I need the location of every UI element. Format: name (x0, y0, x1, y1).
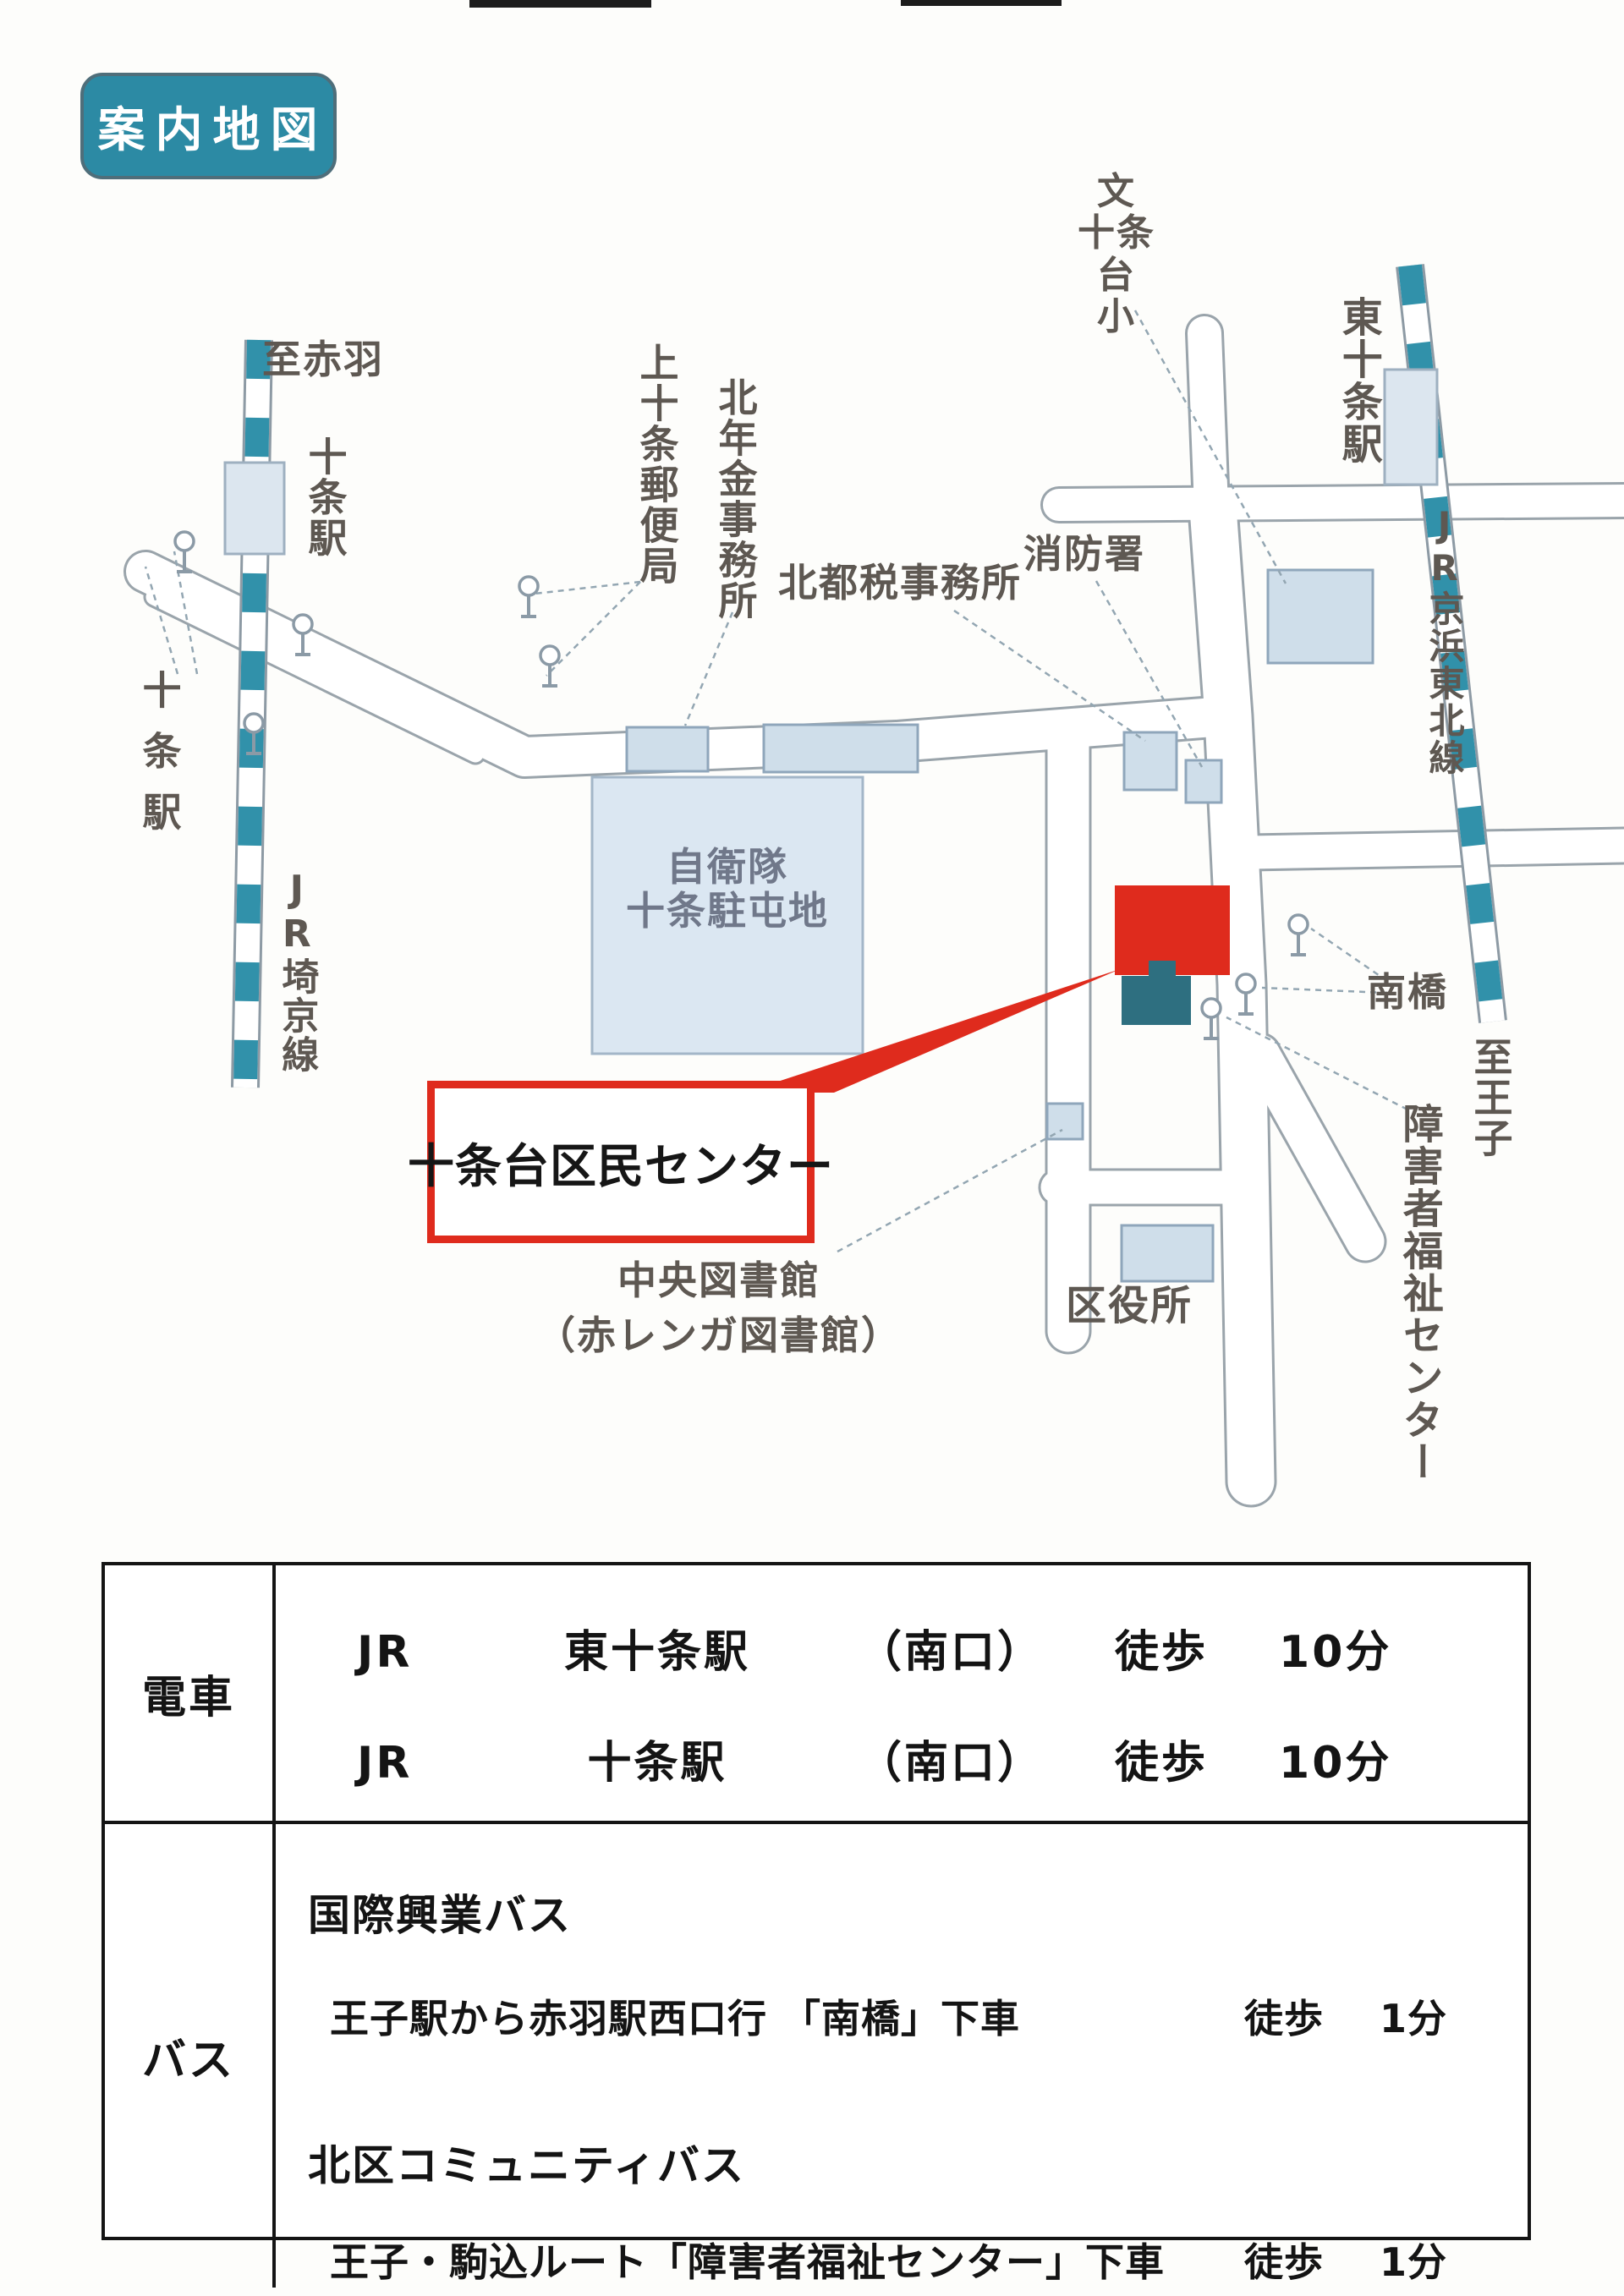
school-building (1268, 570, 1373, 663)
bus-operator: 国際興業バス (308, 1882, 1447, 1943)
bus-route: 王子・駒込ルート「障害者福祉センター」下車 (330, 2232, 1165, 2288)
fire-station-building (1124, 732, 1177, 790)
kita-tax-office-label: 北都税事務所 (778, 562, 1022, 606)
train-time: 10分 (1279, 1727, 1391, 1790)
jujo-station-east-label: 十条駅 (303, 436, 347, 558)
kami-jujo-post-office-label: 上十条郵便局 (634, 342, 678, 586)
bus-time: 1分 (1380, 1988, 1447, 2044)
jujo-station-building (225, 463, 284, 554)
higashi-jujo-station-label: 東十条駅 (1335, 296, 1380, 465)
train-station: 十条駅 (518, 1727, 797, 1790)
tax-office-building (1186, 760, 1221, 803)
train-row-header: 電車 (105, 1565, 276, 1824)
civic-center-callout: 十条台区民センター (427, 1081, 815, 1243)
jsdf-garrison-label: 自衛隊 十条駐屯地 (592, 846, 863, 933)
jsdf-label-line2: 十条駐屯地 (592, 890, 863, 934)
to-oji-label: 至王子 (1468, 1037, 1512, 1159)
bus-row-header: バス (105, 1824, 276, 2288)
bus-route-line: 王子・駒込ルート「障害者福祉センター」下車 徒歩 1分 (308, 2232, 1447, 2288)
bus-row-content: 国際興業バス 王子駅から赤羽駅西口行 「南橋」下車 徒歩 1分 北区コミュニティ… (276, 1824, 1528, 2288)
train-exit: （南口） (858, 1727, 1044, 1790)
central-library-label-line2: （赤レンガ図書館） (464, 1308, 974, 1363)
bus-stop-icon (519, 577, 538, 616)
school-label-line2: 十条台 (1059, 212, 1174, 296)
train-mode: 徒歩 (1115, 1616, 1208, 1680)
bus-route: 王子駅から赤羽駅西口行 「南橋」下車 (330, 1988, 1020, 2044)
map-title-badge: 案内地図 (80, 73, 337, 179)
bus-row-header-label: バス (142, 2025, 235, 2088)
bus-stop-icon (540, 646, 559, 686)
train-line: JR 東十条駅 （南口） 徒歩 10分 (357, 1616, 1447, 1680)
train-company: JR (357, 1738, 433, 1789)
jujo-station-west-label: 十条駅 (137, 670, 181, 852)
train-row-content: JR 東十条駅 （南口） 徒歩 10分 JR 十条駅 （南口） 徒歩 10分 (276, 1565, 1528, 1824)
jsdf-label-line1: 自衛隊 (592, 846, 863, 890)
school-label-line3: 小 (1059, 296, 1174, 337)
train-time: 10分 (1279, 1616, 1391, 1680)
welfare-center-building (1122, 976, 1191, 1025)
train-station: 東十条駅 (518, 1616, 797, 1680)
bus-stop-icon (1289, 915, 1308, 955)
map-title: 案内地図 (90, 92, 328, 161)
to-akabane-label: 至赤羽 (262, 338, 384, 382)
bus-route-line: 王子駅から赤羽駅西口行 「南橋」下車 徒歩 1分 (308, 1988, 1447, 2044)
post-office-building (627, 727, 708, 771)
fire-station-label: 消防署 (1023, 533, 1145, 577)
ward-office-label: 区役所 (1066, 1284, 1193, 1329)
higashi-jujo-station-building (1385, 370, 1437, 485)
school-label-line1: 文 (1059, 171, 1174, 212)
jr-keihin-tohoku-line-label: JR京浜東北線 (1424, 504, 1464, 776)
bus-time: 1分 (1380, 2232, 1447, 2288)
train-mode: 徒歩 (1115, 1727, 1208, 1790)
train-company: JR (357, 1627, 433, 1678)
train-line: JR 十条駅 （南口） 徒歩 10分 (357, 1727, 1447, 1790)
bus-operator: 北区コミュニティバス (308, 2132, 1447, 2193)
access-table: 電車 JR 東十条駅 （南口） 徒歩 10分 JR 十条駅 （南口） 徒歩 10… (101, 1562, 1531, 2240)
central-library-label-line1: 中央図書館 (464, 1253, 974, 1308)
school-label: 文 十条台 小 (1059, 171, 1174, 337)
train-row-header-label: 電車 (142, 1662, 235, 1725)
ward-office-building (1122, 1225, 1213, 1281)
welfare-center-roof (1149, 961, 1176, 978)
minamibashi-label: 南橋 (1367, 971, 1448, 1015)
scan-artifact (901, 0, 1062, 6)
guide-map-page: 案内地図 至赤羽 十条駅 十条駅 JR埼京線 上十条郵便局 北年金事務所 北都税… (0, 0, 1624, 2296)
kita-pension-office-label: 北年金事務所 (713, 377, 757, 621)
train-exit: （南口） (858, 1616, 1044, 1680)
disabled-welfare-center-label: 障害者福祉センター (1396, 1103, 1441, 1483)
civic-center-callout-label: 十条台区民センター (408, 1128, 834, 1196)
scan-artifact (469, 0, 651, 8)
central-library-building (1047, 1104, 1083, 1139)
central-library-label: 中央図書館 （赤レンガ図書館） (464, 1253, 974, 1364)
bus-mode: 徒歩 (1244, 1988, 1324, 2044)
jr-saikyo-line-label: JR埼京線 (276, 868, 317, 1074)
pension-office-building (764, 725, 918, 772)
bus-mode: 徒歩 (1244, 2232, 1324, 2288)
